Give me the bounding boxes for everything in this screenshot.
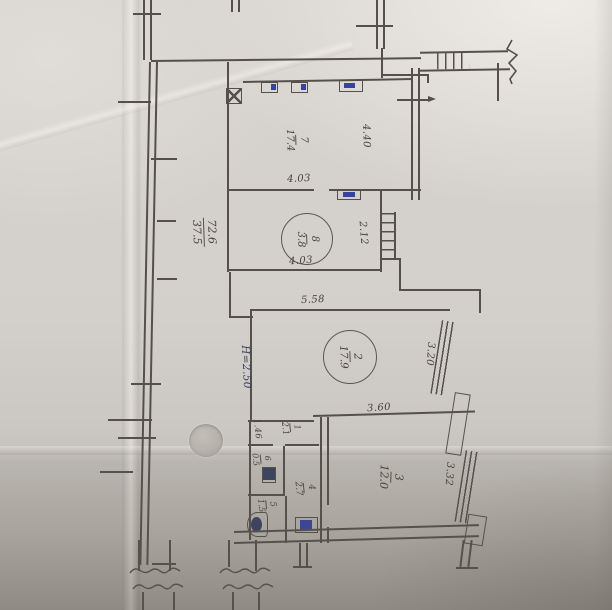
dim-room1-width: 1.46: [251, 418, 263, 439]
wall: [133, 13, 161, 15]
paper-shadow-corner: [300, 420, 612, 610]
vent-shaft-icon: [226, 88, 242, 104]
wall: [397, 99, 430, 101]
dim-room7-width: 4.03: [287, 173, 311, 185]
wall: [100, 471, 133, 473]
wall: [118, 101, 151, 103]
wall: [399, 258, 401, 291]
niche: [291, 82, 308, 93]
floor-plan-photo: 72.6 37.5 7 17.4 4.40 4.03 8: [0, 0, 612, 610]
wall-pier: [464, 514, 487, 547]
room-number: 8: [306, 233, 319, 244]
room-area: 12.0: [377, 464, 391, 489]
dim-room7-depth: 4.40: [360, 124, 372, 148]
paper-shadow-right-edge: [594, 0, 612, 610]
paper-shadow-bottom: [0, 448, 612, 610]
wall: [420, 50, 508, 53]
window-symbol: [430, 320, 456, 395]
wall-break-symbol: [504, 40, 520, 84]
window-mark-icon: [344, 83, 355, 88]
window-symbol: [454, 450, 480, 523]
wall-pier: [445, 392, 471, 456]
wall: [243, 78, 413, 83]
wall: [169, 540, 171, 571]
wall: [229, 272, 231, 318]
wall-break-symbol: [220, 567, 270, 577]
wall: [248, 420, 314, 422]
wall: [313, 410, 475, 417]
window-mark-icon: [343, 192, 355, 197]
wall: [231, 0, 233, 12]
room-label-7: 7 17.4: [283, 128, 308, 151]
wall: [285, 444, 319, 446]
wall: [108, 419, 152, 421]
niche: [261, 82, 278, 93]
room-number: 5: [265, 499, 277, 510]
dim-room2-window: 3.20: [424, 342, 437, 367]
wall: [376, 0, 378, 49]
wall: [381, 258, 400, 260]
stair-hatch: [437, 53, 469, 70]
wall: [327, 417, 329, 505]
niche: [337, 189, 361, 200]
wall: [248, 494, 285, 496]
room-number: 6: [260, 453, 272, 463]
sink-basin: [300, 520, 312, 530]
wall: [293, 566, 312, 568]
wall: [157, 220, 176, 222]
wall: [255, 540, 257, 571]
hole-punch: [189, 424, 223, 457]
dim-room8-depth: 2.12: [357, 221, 370, 246]
wall: [118, 437, 156, 439]
wall: [238, 0, 240, 12]
room-area: 2.7: [292, 481, 304, 496]
room-label-circle: 2 17.9: [323, 330, 377, 384]
bathtub-icon: [247, 512, 268, 537]
room-area: 17.4: [283, 129, 296, 152]
room-label-5: 5 1.5: [255, 497, 278, 513]
wall: [380, 190, 382, 272]
room-number: 2: [349, 351, 363, 362]
wall: [234, 524, 479, 533]
wall: [306, 543, 308, 568]
wall: [383, 74, 429, 76]
wall: [234, 535, 479, 544]
wall: [329, 189, 421, 191]
arrow-tick: [428, 96, 436, 102]
wall: [356, 25, 393, 27]
room-area: 3.8: [294, 231, 306, 247]
dim-room2-width: 5.58: [301, 294, 325, 306]
room-number: 4: [303, 482, 316, 493]
room-label-6: 6 0.5: [250, 452, 271, 467]
bathtub-basin: [251, 517, 262, 532]
wall: [143, 0, 145, 60]
room-label-3: 3 12.0: [377, 464, 405, 489]
room-number: 7: [295, 134, 308, 145]
wall: [459, 540, 464, 567]
wall: [227, 189, 314, 191]
wall: [394, 212, 396, 259]
room-label-1: 1 2.1: [279, 420, 302, 436]
wall: [229, 316, 253, 318]
sink-icon: [295, 517, 318, 533]
room-label-2: 2 17.9: [337, 345, 363, 369]
window-mark-icon: [271, 84, 276, 90]
wall: [411, 68, 413, 200]
room-label-circle: 8 3.8: [281, 213, 333, 265]
wall: [139, 62, 150, 565]
wall: [142, 592, 144, 610]
wall: [138, 540, 140, 571]
wall: [285, 496, 287, 543]
wall: [227, 62, 229, 272]
wall: [146, 62, 157, 565]
niche: [339, 80, 363, 92]
wall: [258, 592, 260, 610]
wall: [418, 68, 510, 71]
wall: [383, 0, 385, 49]
ceiling-height-note: H=2.50: [239, 345, 253, 389]
wall: [400, 289, 481, 291]
wall: [320, 417, 322, 543]
plan-drawing: 72.6 37.5 7 17.4 4.40 4.03 8: [0, 0, 612, 610]
wall-break-symbol: [130, 567, 180, 577]
wall: [250, 309, 252, 422]
crease-horizontal: [0, 446, 612, 455]
wall: [456, 567, 478, 569]
wall: [479, 289, 481, 313]
window-mark-icon: [301, 84, 306, 90]
wall: [157, 278, 177, 280]
window-symbol: [382, 213, 394, 259]
wall: [467, 540, 472, 567]
wall: [251, 309, 450, 311]
toilet-icon: [262, 467, 276, 483]
crease-diagonal-top: [0, 38, 354, 165]
wall: [228, 540, 230, 567]
wall: [418, 68, 420, 200]
wall: [248, 444, 273, 446]
dim-room3-width: 3.60: [367, 402, 392, 415]
wall: [151, 57, 421, 62]
room-area: 17.9: [337, 345, 350, 369]
room-label-4: 4 2.7: [292, 480, 316, 497]
wall: [283, 446, 285, 496]
crease-vertical-left: [122, 0, 142, 610]
wall: [381, 48, 383, 78]
total-area-label: 72.6 37.5: [190, 217, 218, 246]
living-area: 37.5: [190, 220, 204, 245]
wall: [151, 158, 177, 160]
wall: [150, 0, 152, 60]
wall: [249, 420, 251, 540]
dim-room8-width: 4.03: [289, 255, 314, 268]
wall: [497, 63, 499, 101]
wall: [173, 592, 175, 610]
wall-break-symbol: [223, 583, 273, 593]
wall: [299, 543, 301, 568]
room-area: 2.1: [279, 421, 291, 436]
dim-room3-window: 3.32: [443, 462, 456, 487]
wall: [227, 269, 382, 271]
room-number: 3: [390, 471, 404, 482]
room-area: 1.5: [255, 498, 267, 513]
room-number: 1: [289, 422, 301, 433]
wall: [232, 592, 234, 610]
wall-break-symbol: [133, 583, 183, 593]
wall: [427, 74, 429, 83]
total-area: 72.6: [203, 217, 218, 246]
wall: [131, 383, 161, 385]
wall: [152, 563, 176, 565]
room-label-8: 8 3.8: [294, 231, 319, 248]
room-area: 0.5: [250, 453, 261, 467]
wall: [327, 527, 329, 543]
